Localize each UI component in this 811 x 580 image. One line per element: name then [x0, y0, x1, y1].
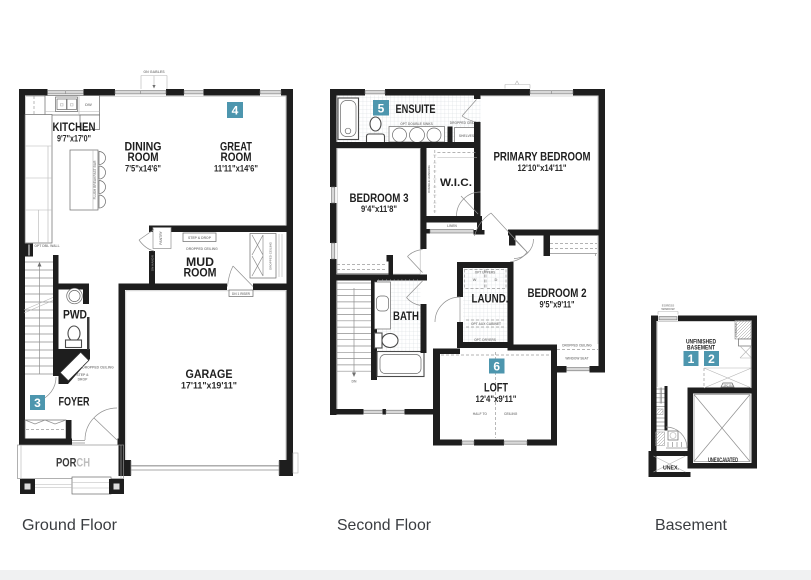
- svg-text:OPT AUX CABINET: OPT AUX CABINET: [471, 322, 501, 326]
- svg-text:LAUND.: LAUND.: [472, 294, 509, 306]
- svg-text:LOFT: LOFT: [484, 383, 508, 395]
- svg-text:W.I.C.: W.I.C.: [440, 177, 472, 189]
- svg-text:FOYER: FOYER: [59, 395, 90, 409]
- svg-text:DN: DN: [352, 380, 357, 384]
- svg-text:DOUBLE HANGING: DOUBLE HANGING: [427, 165, 431, 193]
- svg-text:7'5"x14'6": 7'5"x14'6": [125, 164, 161, 174]
- svg-text:OPT UPPERS: OPT UPPERS: [475, 271, 496, 275]
- svg-text:OPT DOUBLE SINKS: OPT DOUBLE SINKS: [400, 122, 433, 126]
- svg-text:DN HANDR: DN HANDR: [151, 254, 155, 271]
- svg-text:12'4"x9'11": 12'4"x9'11": [476, 394, 517, 404]
- svg-text:DROPPED CEILING: DROPPED CEILING: [269, 241, 273, 270]
- svg-text:OPT. DRYERS: OPT. DRYERS: [474, 338, 497, 342]
- svg-text:ROOM: ROOM: [128, 152, 159, 164]
- svg-text:OPT DBL WALL: OPT DBL WALL: [34, 244, 59, 248]
- svg-text:W: W: [473, 277, 477, 282]
- svg-text:Basement: Basement: [655, 517, 728, 534]
- svg-text:5: 5: [378, 102, 385, 116]
- svg-text:ENSUITE: ENSUITE: [396, 104, 436, 116]
- svg-text:9'4"x11'8": 9'4"x11'8": [361, 204, 397, 214]
- svg-text:GARAGE: GARAGE: [186, 369, 233, 381]
- svg-text:ROOM: ROOM: [221, 152, 252, 164]
- svg-text:DROPPED CEILING: DROPPED CEILING: [82, 366, 114, 370]
- svg-text:UNEX.: UNEX.: [663, 466, 679, 472]
- svg-text:9'5"x9'11": 9'5"x9'11": [540, 300, 575, 310]
- svg-text:9'7"x17'0": 9'7"x17'0": [57, 134, 91, 144]
- svg-text:PRIMARY BEDROOM: PRIMARY BEDROOM: [494, 152, 591, 164]
- svg-text:Second Floor: Second Floor: [337, 517, 432, 534]
- svg-text:3PC R/I: 3PC R/I: [723, 384, 732, 388]
- svg-text:4: 4: [232, 104, 239, 118]
- svg-text:DROP: DROP: [78, 378, 89, 382]
- svg-text:12'10"x14'11": 12'10"x14'11": [518, 163, 567, 173]
- svg-text:BATH: BATH: [393, 311, 419, 323]
- svg-text:STEP & DROP: STEP & DROP: [188, 236, 212, 240]
- svg-text:D: D: [495, 277, 498, 282]
- svg-text:ON GABLES: ON GABLES: [143, 70, 165, 74]
- svg-text:HALF TO: HALF TO: [473, 412, 488, 416]
- svg-text:LINEN: LINEN: [447, 224, 458, 228]
- svg-text:DN 1 RISER: DN 1 RISER: [232, 292, 251, 296]
- svg-text:3: 3: [34, 396, 41, 410]
- svg-text:ROOM: ROOM: [184, 268, 217, 280]
- svg-text:PANTRY: PANTRY: [159, 230, 163, 244]
- svg-text:STEP &: STEP &: [76, 373, 89, 377]
- svg-text:DROPPED CEILING: DROPPED CEILING: [186, 247, 218, 251]
- svg-text:17'11"x19'11": 17'11"x19'11": [181, 381, 237, 391]
- svg-text:6: 6: [493, 360, 500, 374]
- svg-text:WINDOW SEAT: WINDOW SEAT: [565, 357, 588, 361]
- svg-text:BEDROOM 2: BEDROOM 2: [528, 288, 587, 300]
- svg-text:2: 2: [708, 352, 715, 366]
- svg-text:CEILING: CEILING: [504, 412, 518, 416]
- svg-text:PWD: PWD: [63, 310, 87, 322]
- svg-text:BASEMENT: BASEMENT: [687, 346, 715, 352]
- svg-text:1: 1: [688, 352, 695, 366]
- svg-text:FLUSH BREAKFAST BAR: FLUSH BREAKFAST BAR: [93, 160, 97, 199]
- svg-text:FURNACE: FURNACE: [734, 323, 738, 337]
- svg-text:11'11"x14'6": 11'11"x14'6": [214, 164, 258, 174]
- svg-text:PORCH: PORCH: [56, 458, 90, 470]
- svg-text:SHELVES: SHELVES: [459, 134, 475, 138]
- svg-text:DROPPED CEILING: DROPPED CEILING: [562, 344, 592, 348]
- svg-text:DW: DW: [85, 102, 92, 107]
- svg-text:Ground Floor: Ground Floor: [22, 517, 118, 534]
- svg-text:KITCHEN: KITCHEN: [53, 122, 96, 134]
- svg-text:WINDOW: WINDOW: [661, 307, 674, 311]
- svg-text:UNEXCAVATED: UNEXCAVATED: [708, 458, 738, 464]
